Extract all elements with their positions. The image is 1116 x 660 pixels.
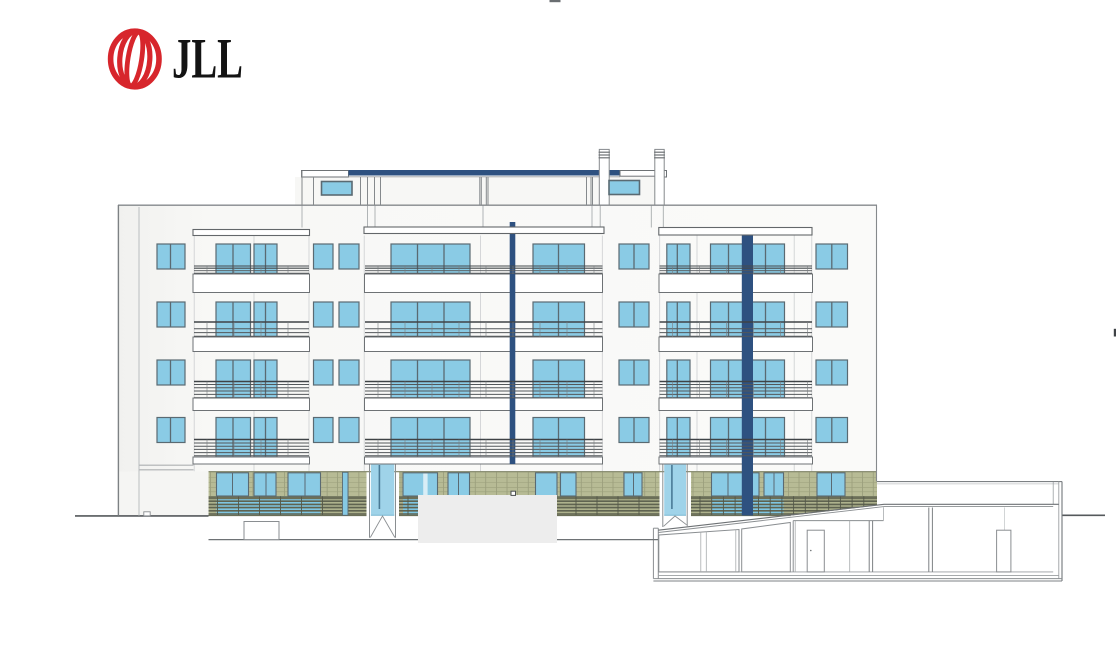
svg-text:JLL: JLL bbox=[172, 28, 243, 91]
